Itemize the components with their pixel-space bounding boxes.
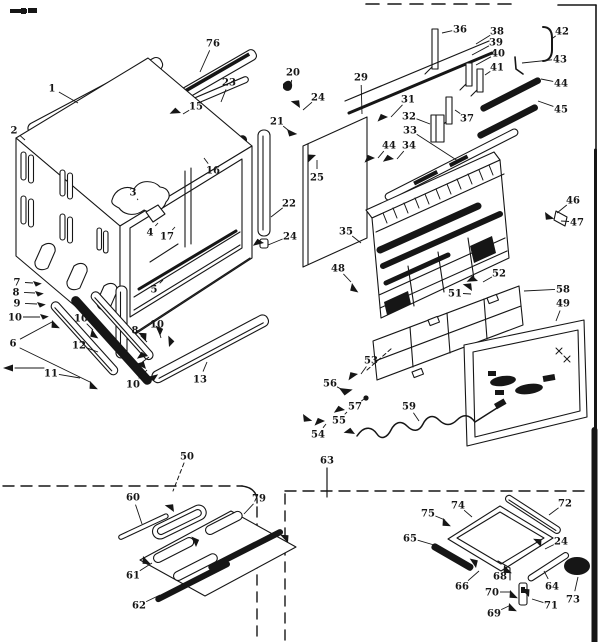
bracket-70-69 (519, 583, 527, 605)
rail-13 (150, 313, 270, 385)
support-kit (431, 494, 590, 605)
plate-32 (431, 115, 444, 142)
bracket-42 (543, 27, 552, 61)
screw-57 (363, 395, 368, 400)
screw-20 (283, 81, 292, 91)
leader-line-6b (20, 348, 90, 382)
window-kit (118, 503, 296, 603)
hook-43 (515, 57, 523, 74)
cabinet-shell (16, 58, 252, 344)
rail-64 (527, 551, 570, 582)
parts-diagram-page: 1276152320242116325222429354841757891061… (0, 0, 608, 642)
corner-stamp (10, 8, 37, 14)
left-arrow-icon (3, 365, 13, 372)
diagram-canvas (0, 0, 608, 642)
clip-41 (471, 69, 483, 96)
channel-22 (258, 130, 270, 248)
panel-29 (303, 117, 367, 267)
clip-47 (554, 211, 567, 226)
knob-73 (564, 557, 590, 575)
grille-35 (366, 152, 509, 318)
